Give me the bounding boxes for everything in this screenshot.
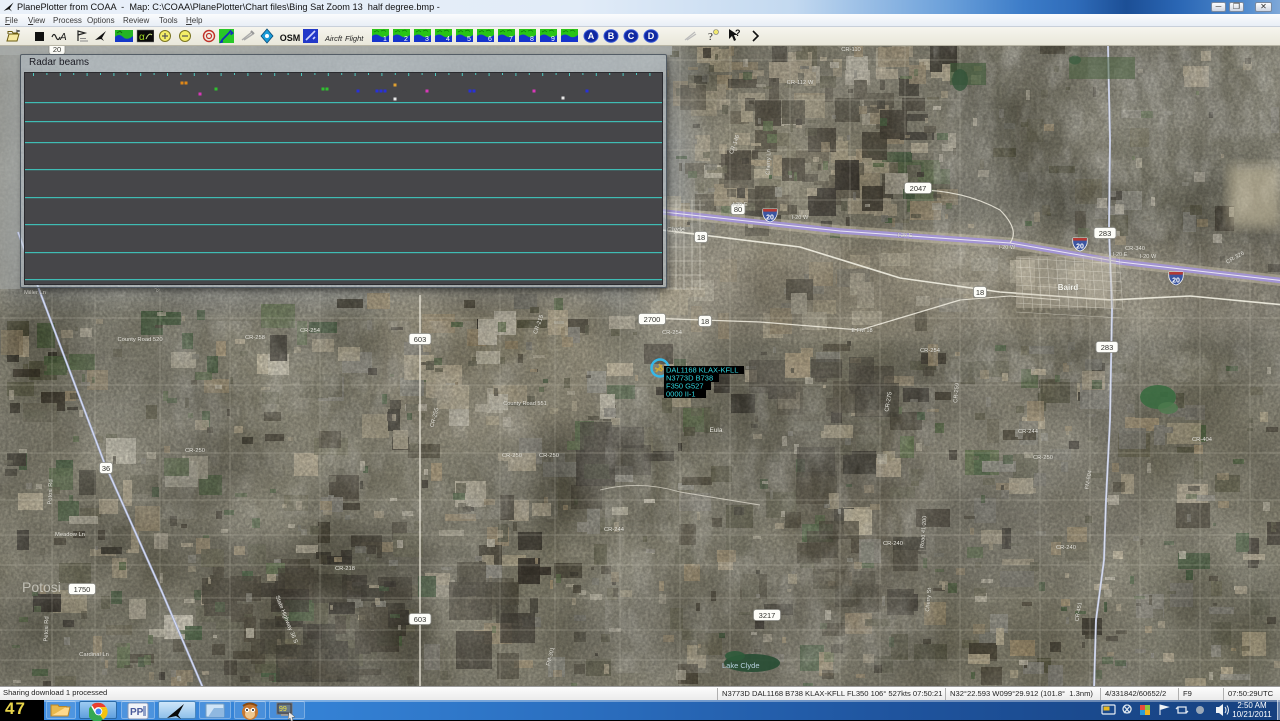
svg-text:20: 20: [766, 215, 774, 222]
svg-text:I-20 W: I-20 W: [999, 245, 1016, 251]
svg-text:CR-250: CR-250: [539, 453, 559, 459]
svg-text:20: 20: [1076, 244, 1084, 251]
svg-text:County Road 520: County Road 520: [117, 337, 162, 343]
svg-text:Clyde: Clyde: [667, 227, 685, 234]
svg-text:3217: 3217: [759, 611, 776, 620]
svg-text:2700: 2700: [644, 315, 661, 324]
svg-text:Meadow Ln: Meadow Ln: [55, 532, 85, 538]
svg-text:283: 283: [1101, 343, 1114, 352]
svg-text:CR-218: CR-218: [335, 566, 355, 572]
svg-text:CR-112 W: CR-112 W: [787, 80, 814, 86]
svg-text:0000 II-1: 0000 II-1: [666, 390, 696, 399]
svg-text:8: 8: [530, 36, 534, 43]
svg-text:3: 3: [425, 36, 429, 43]
svg-text:283: 283: [1099, 229, 1112, 238]
svg-text:CR-340: CR-340: [1125, 246, 1145, 252]
svg-text:603: 603: [414, 335, 427, 344]
svg-text:Cherry Ln: Cherry Ln: [766, 149, 773, 175]
svg-text:603: 603: [414, 615, 427, 624]
svg-text:6: 6: [488, 36, 492, 43]
svg-text:CR-110: CR-110: [841, 47, 861, 53]
svg-text:36: 36: [102, 464, 110, 473]
svg-text:?: ?: [708, 31, 713, 43]
svg-text:20: 20: [53, 46, 61, 54]
svg-text:Petosi Rd: Petosi Rd: [44, 616, 51, 641]
svg-text:Eula: Eula: [709, 427, 722, 434]
svg-text:CR-240: CR-240: [1056, 545, 1076, 551]
svg-text:2: 2: [404, 36, 408, 43]
svg-text:C: C: [628, 31, 635, 41]
svg-text:18: 18: [976, 288, 984, 297]
svg-text:CR-250: CR-250: [502, 453, 522, 459]
svg-text:I-20 E: I-20 E: [898, 233, 913, 239]
svg-text:A: A: [59, 32, 67, 43]
svg-text:Cardinal Ln: Cardinal Ln: [79, 652, 109, 658]
svg-text:I-20 E: I-20 E: [733, 202, 748, 208]
svg-text:20: 20: [1172, 278, 1180, 285]
svg-text:99: 99: [279, 706, 287, 713]
svg-text:PP: PP: [130, 707, 144, 718]
svg-text:D: D: [648, 31, 655, 41]
svg-text:18: 18: [697, 233, 705, 242]
svg-text:CR-240: CR-240: [883, 541, 903, 547]
svg-text:α: α: [139, 32, 145, 43]
svg-text:CR-254: CR-254: [300, 328, 321, 334]
svg-text:5: 5: [467, 36, 471, 43]
svg-text:CR-254: CR-254: [920, 348, 941, 354]
svg-text:CR-258: CR-258: [245, 335, 265, 341]
svg-text:Lake Clyde: Lake Clyde: [722, 661, 760, 670]
svg-text:CR-250: CR-250: [1033, 455, 1053, 461]
svg-text:E FM 18: E FM 18: [851, 328, 872, 334]
svg-text:CR-244: CR-244: [604, 527, 625, 533]
svg-text:Baird: Baird: [1058, 283, 1079, 292]
svg-text:A: A: [588, 31, 595, 41]
svg-text:CR-244: CR-244: [1018, 429, 1039, 435]
svg-text:Potosi Rd: Potosi Rd: [48, 479, 55, 504]
svg-text:?: ?: [735, 28, 741, 38]
svg-text:I-20 W: I-20 W: [792, 215, 809, 221]
svg-text:4: 4: [446, 36, 450, 43]
svg-text:CR-250: CR-250: [185, 448, 205, 454]
svg-text:CR-404: CR-404: [1192, 437, 1213, 443]
svg-text:Potosi: Potosi: [22, 579, 61, 595]
svg-text:1750: 1750: [74, 585, 91, 594]
svg-text:I-20 W: I-20 W: [1140, 254, 1157, 260]
svg-text:9: 9: [551, 36, 555, 43]
svg-text:1: 1: [383, 36, 387, 43]
svg-text:I-20 E: I-20 E: [1113, 252, 1128, 258]
svg-text:7: 7: [509, 36, 513, 43]
svg-text:Miller Ln: Miller Ln: [24, 290, 46, 296]
svg-text:CR-254: CR-254: [662, 330, 683, 336]
svg-text:B: B: [608, 31, 615, 41]
svg-text:County Road 551: County Road 551: [503, 401, 547, 407]
svg-text:2047: 2047: [910, 184, 927, 193]
svg-text:18: 18: [701, 317, 709, 326]
